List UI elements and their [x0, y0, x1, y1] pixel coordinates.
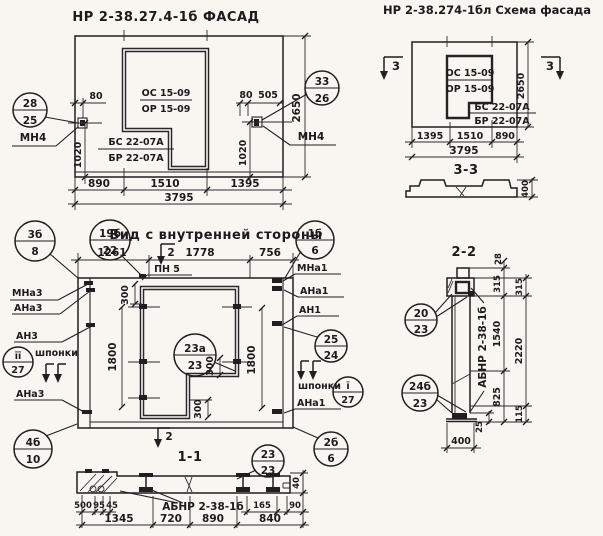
callout-1b-6-bottom: 6 — [311, 245, 318, 257]
label-ana3: АНа3 — [14, 303, 42, 314]
callout-33-26-top: 33 — [315, 76, 330, 88]
s22-base — [452, 413, 467, 419]
facade-drawing: НР 2-38.27.4-1б ФАСАД ОС 15-09 ОР 15-09 … — [12, 10, 339, 210]
s11-dim-165: 165 — [253, 501, 271, 511]
shponka-nub — [233, 304, 241, 309]
inner-dim-300-leg: 300 — [193, 399, 204, 419]
callout-i-27-bottom: 27 — [341, 395, 354, 406]
facade-window-mark-2: ОР 15-09 — [142, 104, 191, 115]
s22-dim-400: 400 — [451, 436, 471, 447]
section-1-1: 1-1 АБНР 2-38-1б 500 95 45 165 90 1345 7… — [74, 450, 309, 528]
callout-23-23-top: 23 — [261, 449, 276, 461]
s11-dim-500: 500 — [74, 501, 92, 511]
facade-window-mark-1: ОС 15-09 — [142, 88, 191, 99]
callout-24b-23-top: 24б — [409, 381, 431, 393]
s22-top-stub — [457, 268, 469, 278]
section-3-3-title: 3-3 — [454, 163, 479, 178]
schema-dim-2650: 2650 — [516, 72, 527, 99]
section-3-3-dim-400: 400 — [521, 180, 531, 198]
facade-dim-505: 505 — [258, 90, 278, 101]
shponka-nub — [233, 359, 241, 364]
callout-2b-6-bottom: 6 — [327, 453, 334, 465]
facade-dim-1510: 1510 — [150, 178, 179, 190]
section-1-1-profile — [77, 472, 290, 493]
s22-dim-1540: 1540 — [492, 320, 503, 347]
callout-ii-27-bottom: 27 — [11, 365, 24, 376]
callout-2b-6-top: 2б — [324, 437, 339, 449]
section-2-2-item-label: АБНР 2-38-1б — [477, 306, 489, 388]
facade-anchor-label-right: МН4 — [298, 131, 325, 143]
label-mna1: МНа1 — [297, 263, 327, 274]
callout-4b-10-top: 4б — [26, 437, 41, 449]
label-ana1-lower: АНа1 — [297, 398, 325, 409]
inner-dim-1800-right: 1800 — [246, 345, 258, 374]
callout-3b-8-top: 3б — [28, 229, 43, 241]
inner-dim-1800-left: 1800 — [107, 342, 119, 371]
schema-title: НР 2-38.274-1бл Схема фасада — [383, 3, 591, 17]
inner-dim-300-top: 300 — [120, 285, 131, 305]
section2-mark-top: 2 — [167, 247, 174, 259]
facade-dim-3795: 3795 — [164, 192, 193, 204]
pn5-label: ПН 5 — [154, 264, 180, 275]
s22-dim-2220: 2220 — [514, 337, 525, 364]
facade-dim-890: 890 — [88, 178, 110, 190]
callout-25-24-top: 25 — [324, 334, 339, 346]
callout-24b-23-bottom: 23 — [413, 398, 428, 410]
label-ana3-lower: АНа3 — [16, 389, 44, 400]
callout-4b-10-bottom: 10 — [26, 454, 41, 466]
facade-dim-80-right: 80 — [239, 90, 253, 101]
schema-dim-1395: 1395 — [417, 131, 443, 142]
callout-3b-8-bottom: 8 — [31, 246, 38, 258]
callout-23a-23-top: 23а — [184, 343, 206, 355]
callout-ii-27-top: īī — [15, 351, 22, 362]
section3-arrow-right — [556, 71, 564, 80]
section3-arrow-left — [380, 71, 388, 80]
inner-dim-300-step: 300 — [205, 356, 216, 376]
facade-dim-1020-right: 1020 — [238, 139, 249, 166]
inner-dim-1261: 1261 — [97, 247, 126, 259]
s22-dim-315-b: 315 — [515, 278, 525, 296]
label-an3: АН3 — [16, 331, 38, 342]
schema-window-mark-2: ОР 15-09 — [446, 84, 495, 95]
inner-view-title: Вид с внутренней стороны — [109, 228, 322, 243]
callout-25-24-bottom: 24 — [324, 350, 339, 362]
schema-sill-mark-1: БС 22-07А — [474, 102, 530, 113]
s22-dim-315-a: 315 — [493, 275, 503, 293]
label-an1: АН1 — [299, 305, 321, 316]
schema-dim-1510: 1510 — [457, 131, 484, 142]
section3-mark-left: 3 — [392, 59, 400, 73]
s22-dim-25: 25 — [475, 421, 485, 433]
schema-dim-890: 890 — [495, 131, 515, 142]
facade-title: НР 2-38.27.4-1б ФАСАД — [72, 10, 259, 25]
callout-23a-23-bottom: 23 — [188, 360, 203, 372]
label-ana1: АНа1 — [300, 286, 328, 297]
s22-dim-28: 28 — [494, 253, 504, 265]
callout-28-25-top: 28 — [23, 98, 38, 110]
section2-mark-bottom: 2 — [165, 431, 172, 443]
s11-dim-890: 890 — [202, 513, 224, 525]
inner-view-drawing: 3б 8 19б 22 1б 6 Вид с внутренней сторон… — [3, 220, 363, 479]
section2-arrow-bottom — [154, 439, 162, 448]
label-mna3: МНа3 — [12, 288, 42, 299]
s11-dim-90: 90 — [289, 501, 301, 511]
drawing-sheet: НР 2-38.27.4-1б ФАСАД ОС 15-09 ОР 15-09 … — [0, 0, 603, 536]
drawing-canvas: НР 2-38.27.4-1б ФАСАД ОС 15-09 ОР 15-09 … — [0, 0, 603, 536]
facade-sill-mark-2: БР 22-07А — [108, 153, 164, 164]
s11-dim-40: 40 — [292, 477, 302, 489]
schema-drawing: НР 2-38.274-1бл Схема фасада ОС 15-09 ОР… — [380, 3, 591, 163]
facade-dim-80-left: 80 — [89, 91, 103, 102]
facade-anchor-label-left: МН4 — [20, 132, 47, 144]
callout-i-27-top: ī — [346, 381, 350, 392]
s11-dim-45: 45 — [106, 501, 118, 511]
section-1-1-title: 1-1 — [178, 450, 203, 465]
shponka-nub — [139, 395, 147, 400]
shponka-nub — [139, 359, 147, 364]
s11-dim-95: 95 — [93, 501, 105, 511]
callout-28-25-bottom: 25 — [23, 115, 38, 127]
callout-33-26-bottom: 26 — [315, 93, 330, 105]
s11-dim-840: 840 — [259, 513, 281, 525]
section-2-2: 2-2 АБНР 2-38-1б 20 23 24б 23 28 315 154… — [402, 245, 532, 453]
schema-window-mark-1: ОС 15-09 — [446, 68, 495, 79]
inner-dim-1778: 1778 — [185, 247, 214, 259]
s22-dim-825: 825 — [492, 387, 503, 407]
schema-sill-mark-2: БР 22-07А — [474, 116, 530, 127]
facade-dim-1395: 1395 — [230, 178, 259, 190]
section-3-3: 3-3 400 — [406, 163, 538, 200]
s22-dim-115: 115 — [515, 405, 525, 423]
inner-dim-756: 756 — [259, 247, 281, 259]
facade-sill-mark-1: БС 22-07А — [108, 137, 164, 148]
callout-20-23-bottom: 23 — [414, 324, 429, 336]
shponka-nub — [139, 304, 147, 309]
section-1-1-item-label: АБНР 2-38-1б — [162, 501, 244, 513]
callout-20-23-top: 20 — [414, 308, 429, 320]
label-shponki-left: шпонки — [35, 348, 78, 359]
section-2-2-title: 2-2 — [452, 245, 477, 260]
schema-dim-3795: 3795 — [449, 145, 478, 157]
facade-dim-1020-left: 1020 — [73, 141, 84, 168]
section3-mark-right: 3 — [546, 59, 554, 73]
s11-dim-720: 720 — [160, 513, 182, 525]
s11-dim-1345: 1345 — [104, 513, 133, 525]
